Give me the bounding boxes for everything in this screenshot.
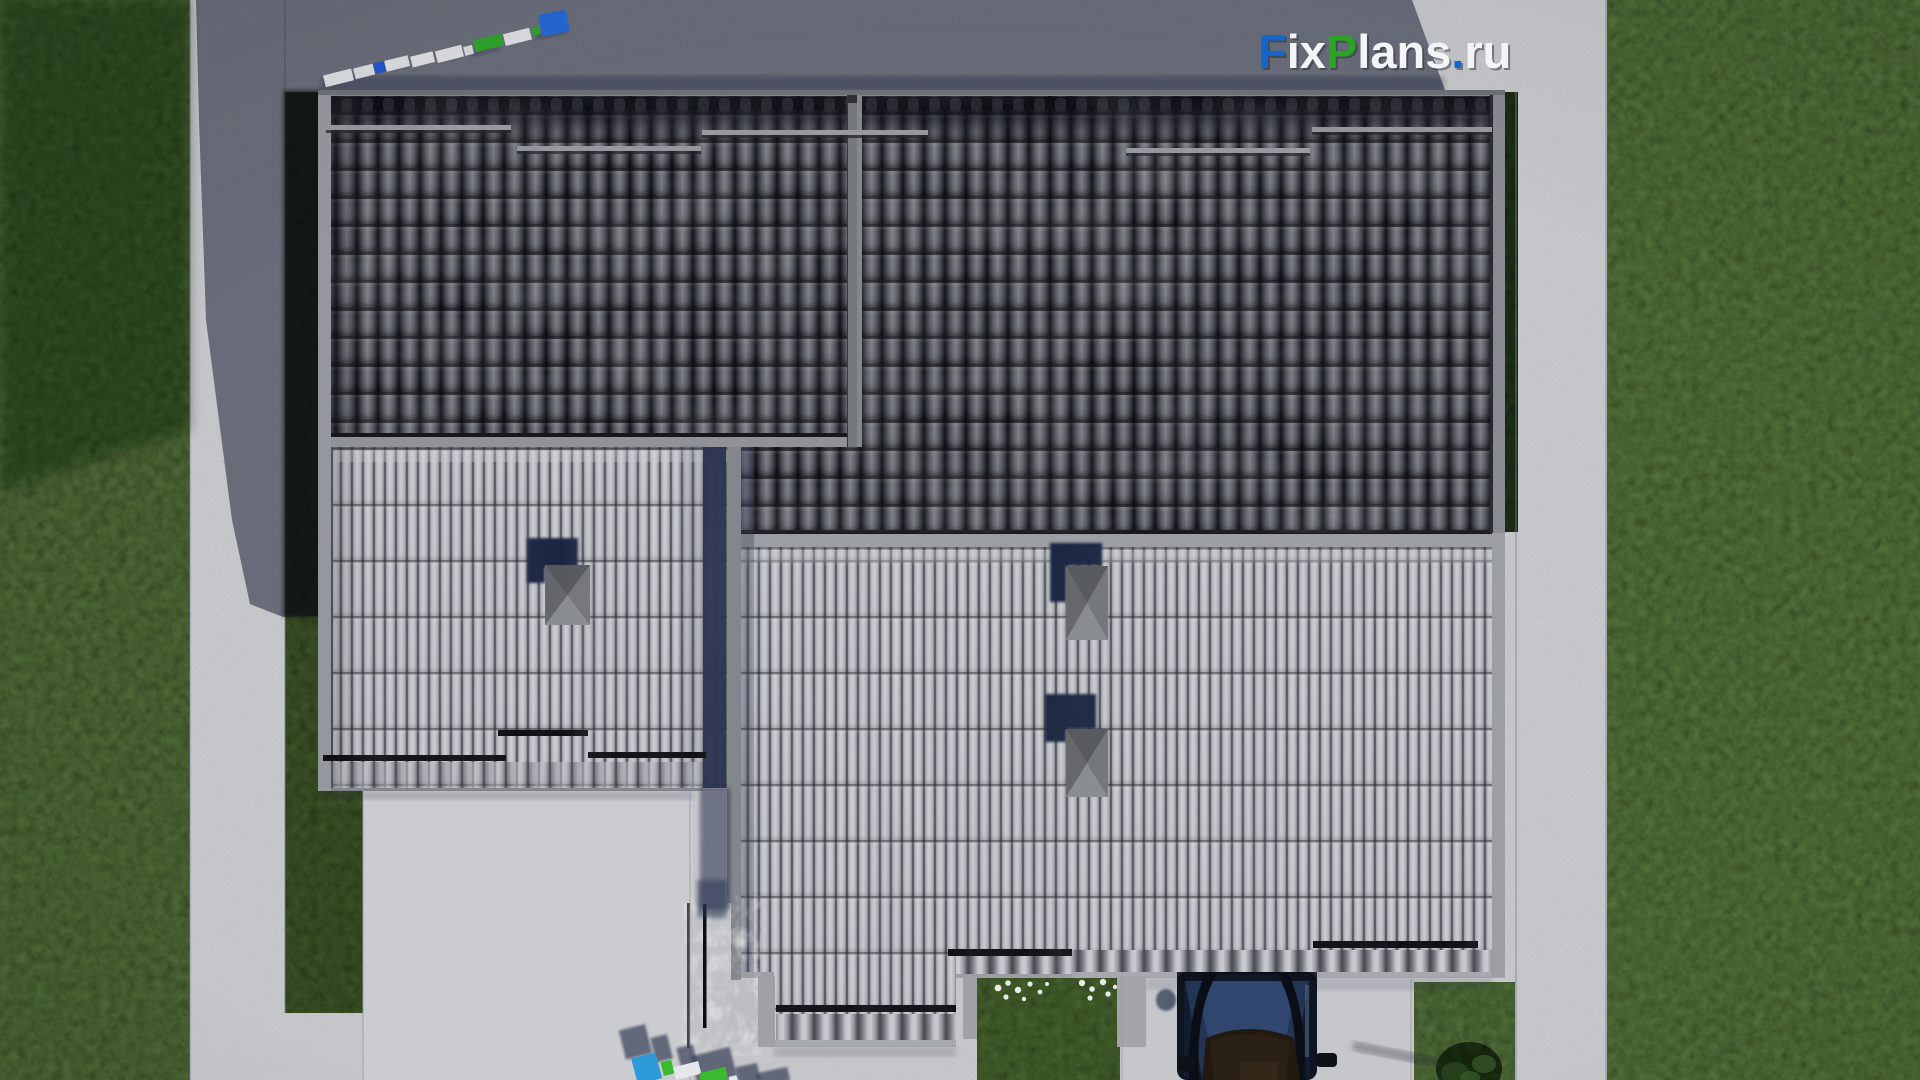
- svg-text:FixPlans.ru: FixPlans.ru: [1258, 25, 1511, 78]
